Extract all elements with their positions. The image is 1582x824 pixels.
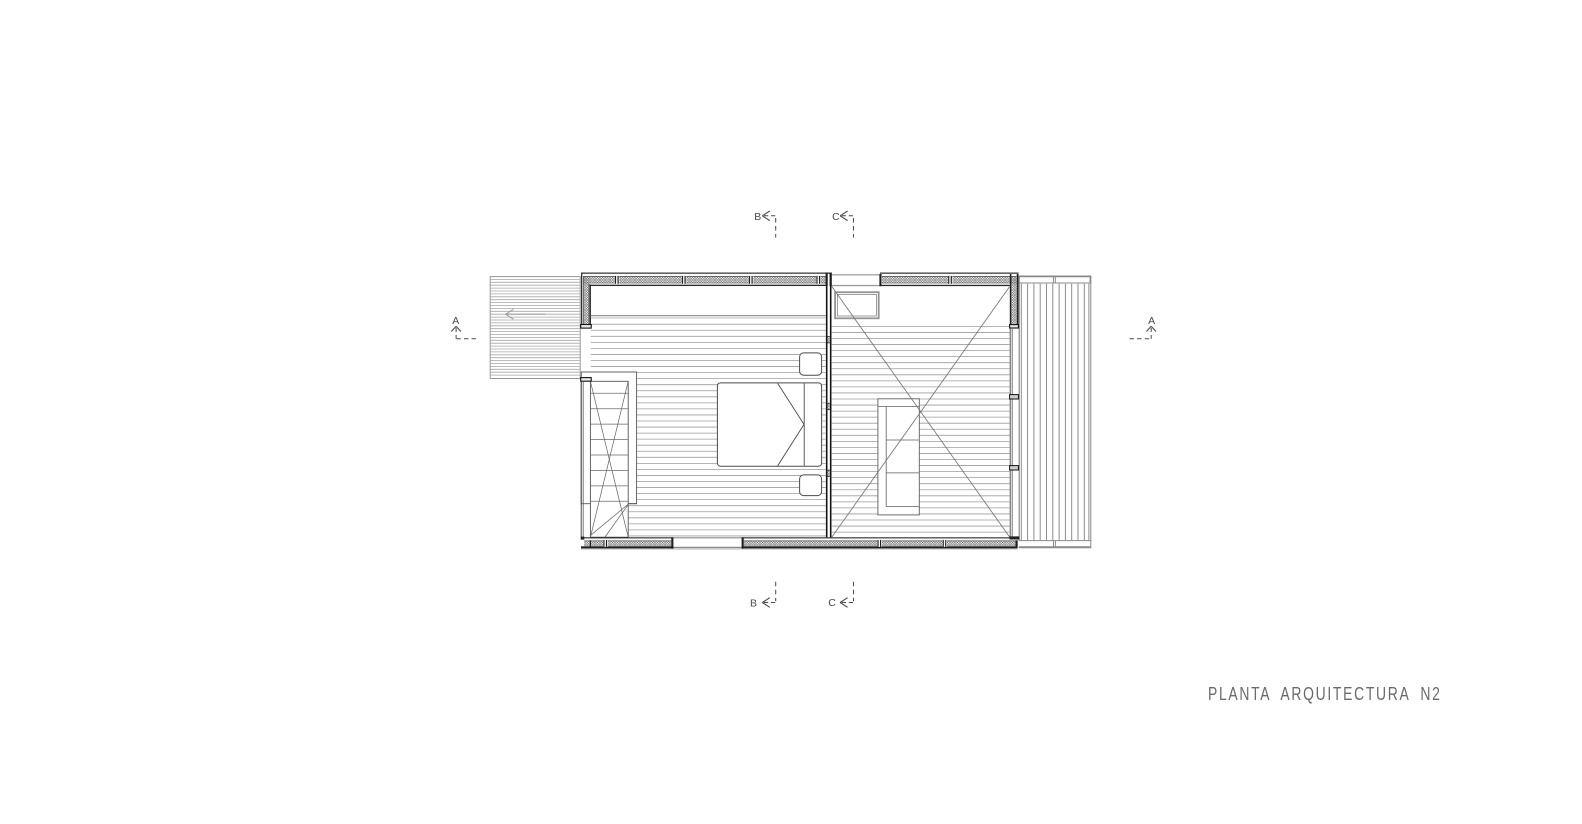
svg-text:PLANTA ARQUITECTURA N2: PLANTA ARQUITECTURA N2 [1208,683,1442,705]
svg-text:C: C [832,211,840,223]
svg-text:A: A [452,315,459,327]
svg-text:B: B [754,211,761,223]
svg-text:A: A [1148,315,1155,327]
svg-text:B: B [750,598,757,610]
svg-text:C: C [828,597,836,609]
